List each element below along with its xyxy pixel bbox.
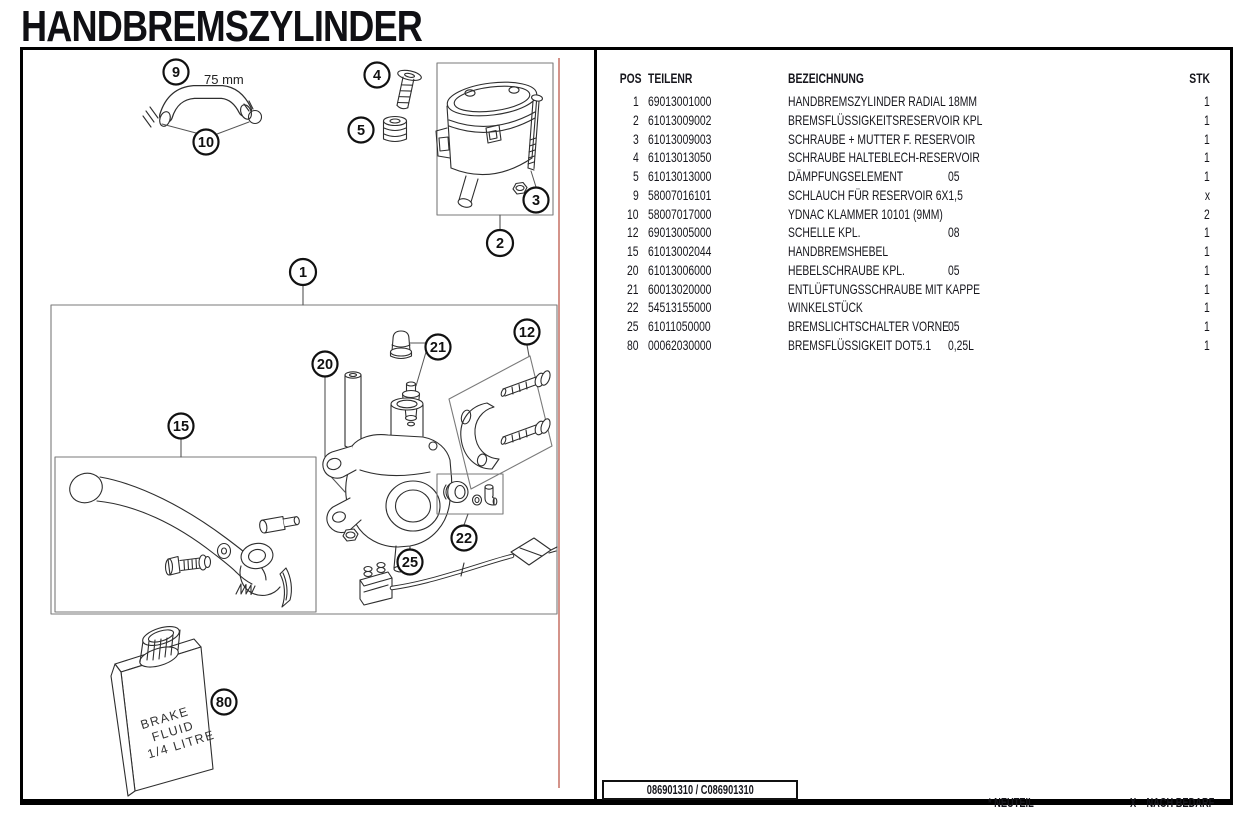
callout-80: 80 <box>212 690 237 715</box>
page-title: HANDBREMSZYLINDER <box>21 2 422 52</box>
callout-4: 4 <box>365 63 390 88</box>
cell-pos: 9 <box>612 186 639 205</box>
cell-teilenr: 58007016101 <box>648 186 734 205</box>
cell-stk: 1 <box>1168 130 1210 149</box>
cell-pos: 80 <box>612 336 639 355</box>
cell-stk: 1 <box>1168 280 1210 299</box>
cell-bezeichnung: HANDBREMSHEBEL <box>788 242 923 261</box>
cell-pos: 12 <box>612 223 639 242</box>
table-row: 2561011050000BREMSLICHTSCHALTER VORNE051 <box>612 317 1210 336</box>
cell-stk: 1 <box>1168 148 1210 167</box>
legend-nach-bedarf: X NACH BEDARF <box>1116 782 1241 813</box>
table-header-row: POS TEILENR BEZEICHNUNG STK <box>612 70 1210 92</box>
callout-21: 21 <box>426 335 451 360</box>
svg-text:4: 4 <box>373 68 381 84</box>
cell-pos: 5 <box>612 167 639 186</box>
header-pos: POS <box>612 70 639 86</box>
reservoir-screw-part <box>391 68 422 111</box>
cell-pos: 20 <box>612 261 639 280</box>
parts-table-rows: 169013001000HANDBREMSZYLINDER RADIAL 18M… <box>612 92 1210 355</box>
handlebar-clamp-part <box>460 403 499 469</box>
cell-bezeichnung: WINKELSTÜCK <box>788 298 889 317</box>
callout-10: 10 <box>194 130 219 155</box>
cell-bezeichnung: ENTLÜFTUNGSSCHRAUBE MIT KAPPE <box>788 280 1048 299</box>
hose-part <box>158 92 254 128</box>
leader-line-22 <box>464 514 468 525</box>
document-number-box: 086901310 / C086901310 <box>602 780 798 800</box>
cell-bezeichnung: SCHELLE KPL.08 <box>788 223 886 242</box>
cell-pos: 4 <box>612 148 639 167</box>
legend-neuteil: * NEUTEIL <box>974 782 1050 813</box>
cell-size-suffix: 05 <box>948 261 960 280</box>
cell-teilenr: 61013009002 <box>648 111 734 130</box>
cell-bezeichnung: SCHRAUBE HALTEBLECH-RESERVOIR <box>788 148 1047 167</box>
cell-teilenr: 61013013050 <box>648 148 734 167</box>
cell-bezeichnung: HEBELSCHRAUBE KPL.05 <box>788 261 946 280</box>
cell-size-suffix: 05 <box>948 167 960 186</box>
brake-fluid-bottle-part: BRAKE FLUID 1/4 LITRE <box>111 623 217 796</box>
table-row: 958007016101SCHLAUCH FÜR RESERVOIR 6X1,5… <box>612 186 1210 205</box>
header-bezeichnung: BEZEICHNUNG <box>788 70 891 86</box>
brake-lever-part <box>66 469 292 607</box>
svg-text:22: 22 <box>456 531 472 547</box>
cell-pos: 15 <box>612 242 639 261</box>
cell-stk: 1 <box>1168 261 1210 280</box>
master-cylinder-body <box>323 398 452 572</box>
header-teilenr: TEILENR <box>648 70 708 86</box>
cell-bezeichnung: HANDBREMSZYLINDER RADIAL 18MM <box>788 92 1043 111</box>
bleeder-cap-part <box>391 331 412 359</box>
table-row: 1269013005000SCHELLE KPL.081 <box>612 223 1210 242</box>
callout-20: 20 <box>313 352 338 377</box>
cell-stk: 1 <box>1168 167 1210 186</box>
cell-pos: 3 <box>612 130 639 149</box>
svg-text:20: 20 <box>317 357 333 373</box>
svg-text:1: 1 <box>299 265 307 281</box>
cell-stk: 1 <box>1168 298 1210 317</box>
cell-pos: 21 <box>612 280 639 299</box>
cell-stk: 1 <box>1168 223 1210 242</box>
callout-1: 1 <box>290 259 316 285</box>
svg-text:15: 15 <box>173 419 189 435</box>
exploded-diagram: 75 mm <box>21 47 594 805</box>
svg-text:2: 2 <box>496 236 504 252</box>
table-row: 169013001000HANDBREMSZYLINDER RADIAL 18M… <box>612 92 1210 111</box>
cell-teilenr: 69013005000 <box>648 223 734 242</box>
callout-9: 9 <box>164 60 189 85</box>
table-row: 1561013002044HANDBREMSHEBEL1 <box>612 242 1210 261</box>
table-row: 2254513155000WINKELSTÜCK1 <box>612 298 1210 317</box>
hose-clamp-left <box>143 107 158 127</box>
svg-text:21: 21 <box>430 340 446 356</box>
cell-size-suffix: 05 <box>948 317 960 336</box>
lever-adjuster-part <box>259 514 301 534</box>
svg-text:25: 25 <box>402 555 418 571</box>
cell-pos: 25 <box>612 317 639 336</box>
callout-2: 2 <box>487 230 513 256</box>
table-row: 2160013020000ENTLÜFTUNGSSCHRAUBE MIT KAP… <box>612 280 1210 299</box>
cell-stk: 1 <box>1168 92 1210 111</box>
lever-spring-part <box>236 584 255 595</box>
svg-text:80: 80 <box>216 695 232 711</box>
svg-text:10: 10 <box>198 135 214 151</box>
leader-line-12 <box>527 345 529 356</box>
cell-bezeichnung: SCHLAUCH FÜR RESERVOIR 6X1,5 <box>788 186 1024 205</box>
cell-stk: 2 <box>1168 205 1210 224</box>
cell-pos: 22 <box>612 298 639 317</box>
table-row: 261013009002BREMSFLÜSSIGKEITSRESERVOIR K… <box>612 111 1210 130</box>
table-row: 361013009003SCHRAUBE + MUTTER F. RESERVO… <box>612 130 1210 149</box>
cell-pos: 10 <box>612 205 639 224</box>
cell-size-suffix: 08 <box>948 223 960 242</box>
callout-25: 25 <box>398 550 423 575</box>
cell-pos: 2 <box>612 111 639 130</box>
callout-5: 5 <box>349 118 374 143</box>
damper-element-part <box>384 117 407 142</box>
cell-teilenr: 60013020000 <box>648 280 734 299</box>
svg-text:3: 3 <box>532 193 540 209</box>
table-row: 2061013006000HEBELSCHRAUBE KPL.051 <box>612 261 1210 280</box>
cell-stk: 1 <box>1168 111 1210 130</box>
cell-stk: 1 <box>1168 317 1210 336</box>
cell-bezeichnung: DÄMPFUNGSELEMENT05 <box>788 167 944 186</box>
table-row: 561013013000DÄMPFUNGSELEMENT051 <box>612 167 1210 186</box>
cell-teilenr: 61013002044 <box>648 242 734 261</box>
table-row: 461013013050SCHRAUBE HALTEBLECH-RESERVOI… <box>612 148 1210 167</box>
cell-teilenr: 61013013000 <box>648 167 734 186</box>
svg-text:5: 5 <box>357 123 365 139</box>
callout-12: 12 <box>515 320 540 345</box>
cell-teilenr: 61013009003 <box>648 130 734 149</box>
table-row: 1058007017000YDNAC KLAMMER 10101 (9MM)2 <box>612 205 1210 224</box>
cell-bezeichnung: BREMSLICHTSCHALTER VORNE05 <box>788 317 1006 336</box>
parts-table: POS TEILENR BEZEICHNUNG STK 169013001000… <box>612 70 1210 355</box>
cell-teilenr: 61013006000 <box>648 261 734 280</box>
cell-teilenr: 58007017000 <box>648 205 734 224</box>
lever-bolt-part <box>166 555 211 575</box>
callouts: 9 10 4 5 3 2 1 20 21 12 15 22 25 80 <box>164 60 549 715</box>
cell-bezeichnung: YDNAC KLAMMER 10101 (9MM) <box>788 205 997 224</box>
callout-3: 3 <box>524 188 549 213</box>
cell-stk: 1 <box>1168 336 1210 355</box>
catalog-page: HANDBREMSZYLINDER 75 mm <box>0 0 1241 813</box>
header-stk: STK <box>1168 70 1210 86</box>
table-row: 8000062030000BREMSFLÜSSIGKEIT DOT5.10,25… <box>612 336 1210 355</box>
column-divider <box>594 47 597 805</box>
leader-lines-21 <box>410 343 426 386</box>
cell-bezeichnung: BREMSFLÜSSIGKEIT DOT5.10,25L <box>788 336 981 355</box>
cell-pos: 1 <box>612 92 639 111</box>
callout-22: 22 <box>452 526 477 551</box>
dimension-label: 75 mm <box>204 72 244 87</box>
cell-teilenr: 69013001000 <box>648 92 734 111</box>
cell-size-suffix: 0,25L <box>948 336 974 355</box>
clamp-screws-part <box>500 370 552 445</box>
document-number: 086901310 / C086901310 <box>647 782 754 799</box>
cell-stk: x <box>1168 186 1210 205</box>
cell-bezeichnung: BREMSFLÜSSIGKEITSRESERVOIR KPL <box>788 111 1051 130</box>
callout-15: 15 <box>169 414 194 439</box>
cell-teilenr: 61011050000 <box>648 317 733 336</box>
cell-teilenr: 00062030000 <box>648 336 734 355</box>
cell-bezeichnung: SCHRAUBE + MUTTER F. RESERVOIR <box>788 130 1041 149</box>
svg-text:9: 9 <box>172 65 180 81</box>
svg-text:12: 12 <box>519 325 535 341</box>
cell-teilenr: 54513155000 <box>648 298 734 317</box>
cell-stk: 1 <box>1168 242 1210 261</box>
